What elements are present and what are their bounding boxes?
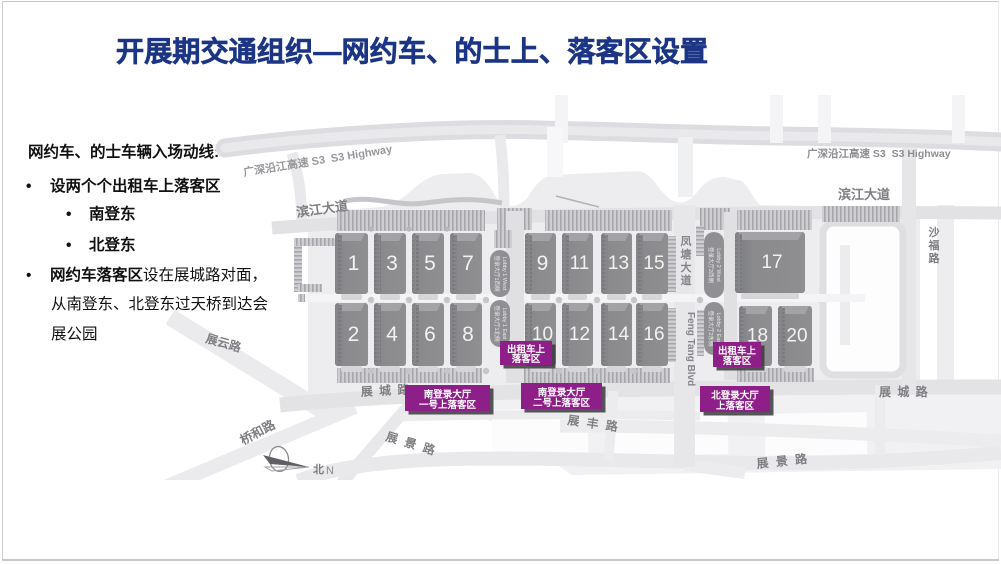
svg-text:16: 16 [643, 324, 664, 345]
svg-text:Lobby 2 East: Lobby 2 East [715, 312, 721, 345]
svg-text:2: 2 [348, 323, 360, 346]
svg-text:展 城 路: 展 城 路 [360, 381, 411, 399]
svg-text:大: 大 [681, 260, 692, 274]
svg-text:8: 8 [462, 323, 474, 346]
svg-text:一号上落客区: 一号上落客区 [419, 399, 477, 411]
svg-text:路: 路 [929, 251, 941, 265]
svg-text:Lobby 2 West: Lobby 2 West [715, 248, 721, 282]
svg-text:北登录大厅: 北登录大厅 [711, 389, 759, 401]
svg-text:展 景 路: 展 景 路 [384, 429, 439, 459]
svg-text:Lobby 1 East: Lobby 1 East [501, 307, 507, 340]
svg-text:沙: 沙 [929, 226, 940, 239]
svg-text:登录大厅1北侧: 登录大厅1北侧 [493, 305, 501, 342]
svg-text:N: N [326, 465, 334, 477]
svg-text:滨江大道: 滨江大道 [838, 187, 890, 202]
svg-text:落客区: 落客区 [723, 355, 752, 367]
svg-text:上落客区: 上落客区 [716, 400, 755, 412]
svg-text:20: 20 [786, 326, 807, 347]
svg-text:凤: 凤 [681, 235, 692, 248]
svg-text:14: 14 [608, 324, 630, 345]
svg-text:南登录大厅: 南登录大厅 [424, 388, 472, 400]
svg-text:塘: 塘 [681, 247, 692, 261]
svg-text:道: 道 [681, 273, 692, 287]
svg-text:登录大厅1西侧: 登录大厅1西侧 [493, 255, 501, 292]
svg-text:3: 3 [386, 252, 398, 275]
svg-text:7: 7 [462, 252, 474, 275]
svg-text:Feng Tang Blvd: Feng Tang Blvd [685, 312, 696, 386]
svg-text:9: 9 [537, 252, 549, 275]
svg-text:5: 5 [424, 252, 436, 275]
svg-text:11: 11 [570, 253, 590, 274]
svg-text:17: 17 [761, 252, 782, 273]
svg-text:福: 福 [928, 238, 940, 252]
svg-text:4: 4 [386, 323, 398, 346]
svg-text:展 城 路: 展 城 路 [879, 384, 929, 399]
svg-text:1: 1 [348, 252, 360, 275]
svg-text:15: 15 [643, 253, 664, 274]
svg-text:南登录大厅: 南登录大厅 [538, 386, 586, 398]
svg-text:12: 12 [569, 324, 590, 345]
svg-text:落客区: 落客区 [512, 353, 541, 365]
svg-text:北: 北 [313, 462, 324, 476]
svg-text:登录大厅2西侧: 登录大厅2西侧 [707, 247, 715, 284]
svg-text:Lobby 1 West: Lobby 1 West [501, 257, 507, 291]
svg-text:6: 6 [424, 323, 436, 346]
svg-text:登录大厅2东侧: 登录大厅2东侧 [707, 310, 715, 347]
svg-text:二号上落客区: 二号上落客区 [533, 397, 591, 409]
svg-text:广深沿江高速 S3 S3 Highway: 广深沿江高速 S3 S3 Highway [807, 147, 951, 160]
svg-text:13: 13 [608, 253, 629, 274]
